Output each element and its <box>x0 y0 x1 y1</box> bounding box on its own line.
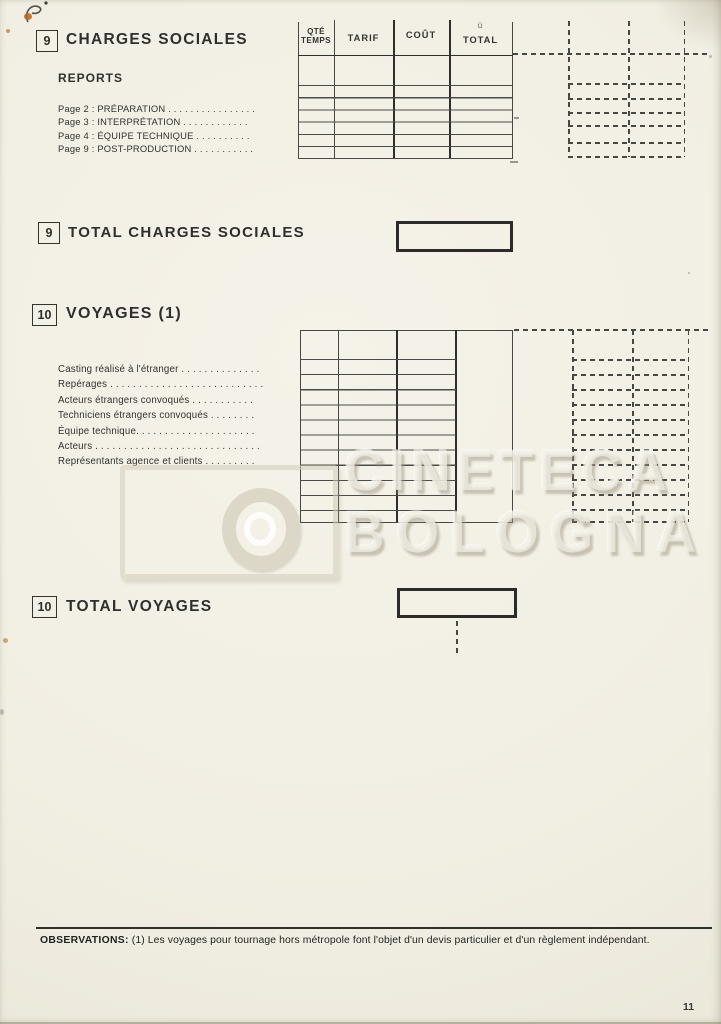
dashed-grid-line <box>572 464 689 466</box>
col-header-tarif: TARIF <box>334 33 393 43</box>
page-number: 11 <box>683 1001 694 1013</box>
col-header-qte-temps: QTÉ TEMPS <box>299 27 333 45</box>
ink-speck <box>24 13 32 20</box>
voyages-line-reperages: Repérages . . . . . . . . . . . . . . . … <box>58 377 263 392</box>
scanned-budget-form-page: 9 CHARGES SOCIALES REPORTS Page 2 : PRÉP… <box>0 0 721 1024</box>
dashed-grid-line <box>572 521 689 523</box>
total-10-number: 10 <box>38 600 52 614</box>
reports-line-list: Page 2 : PRÉPARATION . . . . . . . . . .… <box>58 102 255 155</box>
col-header-total-smudge: ù <box>449 21 512 30</box>
report-line-page9: Page 9 : POST-PRODUCTION . . . . . . . .… <box>58 142 255 155</box>
ink-speck <box>3 638 8 643</box>
dashed-grid-line <box>568 156 685 158</box>
dashed-grid-line <box>684 21 686 157</box>
observations-note: OBSERVATIONS: (1) Les voyages pour tourn… <box>40 935 712 946</box>
footer-rule <box>36 927 712 929</box>
dashed-grid-line <box>568 83 685 85</box>
col-header-total: TOTAL <box>449 35 512 45</box>
dashed-grid-line <box>568 125 685 127</box>
dashed-grid-line <box>572 404 689 406</box>
section-9-title: CHARGES SOCIALES <box>66 31 248 49</box>
report-line-page4: Page 4 : ÉQUIPE TECHNIQUE . . . . . . . … <box>58 129 255 142</box>
ink-speck <box>688 272 690 274</box>
grid-line <box>512 330 513 523</box>
report-line-page3: Page 3 : INTERPRÉTATION . . . . . . . . … <box>58 115 255 128</box>
grid-line <box>300 330 512 331</box>
ink-speck <box>6 29 10 33</box>
dashed-grid-line <box>572 359 689 361</box>
dashed-grid-line <box>568 142 685 144</box>
voyages-line-equipe-technique: Équipe technique. . . . . . . . . . . . … <box>58 424 263 439</box>
dashed-grid-line <box>572 509 689 511</box>
voyages-line-casting: Casting réalisé à l'étranger . . . . . .… <box>58 362 263 377</box>
dashed-grid-line <box>568 112 685 114</box>
section-9-number: 9 <box>44 34 51 48</box>
section-10-title: VOYAGES (1) <box>66 305 182 323</box>
watermark-logo-inner-ring <box>244 512 276 546</box>
reports-label: REPORTS <box>58 71 123 85</box>
dashed-grid-line <box>572 479 689 481</box>
total-charges-sociales-box <box>396 221 513 252</box>
section-10-number: 10 <box>38 308 52 322</box>
ink-speck <box>0 709 4 715</box>
grid-line <box>298 55 513 57</box>
voyages-line-acteurs-etrangers: Acteurs étrangers convoqués . . . . . . … <box>58 393 263 408</box>
charges-sociales-table: QTÉ TEMPS TARIF COÛT TOTAL ù <box>298 20 513 158</box>
dashed-grid-line <box>572 434 689 436</box>
dashed-grid-line <box>572 374 689 376</box>
observations-label: OBSERVATIONS: <box>40 935 129 946</box>
observations-text: (1) Les voyages pour tournage hors métro… <box>132 935 650 946</box>
total-9-number: 9 <box>46 226 53 240</box>
voyages-dashed-table <box>572 330 689 523</box>
stray-dash-mark <box>514 117 519 119</box>
voyages-line-techniciens: Techniciens étrangers convoqués . . . . … <box>58 408 263 423</box>
dashed-grid-line <box>572 494 689 496</box>
voyages-line-representants: Représentants agence et clients . . . . … <box>58 454 263 469</box>
total-charges-sociales-label: TOTAL CHARGES SOCIALES <box>68 224 305 241</box>
dashed-grid-line <box>572 419 689 421</box>
dashed-grid-line <box>572 449 689 451</box>
total-voyages-box <box>397 588 517 618</box>
voyages-table <box>300 330 513 523</box>
dashed-grid-line <box>628 21 630 157</box>
watermark-logo-outer-ring <box>222 488 300 570</box>
report-line-page2: Page 2 : PRÉPARATION . . . . . . . . . .… <box>58 102 255 115</box>
total-10-number-box: 10 <box>32 596 57 618</box>
section-10-number-box: 10 <box>32 304 57 326</box>
pen-squiggle-mark <box>20 0 54 24</box>
dashed-grid-line <box>568 98 685 100</box>
grid-row-lines <box>298 85 513 159</box>
total-9-number-box: 9 <box>38 222 60 244</box>
total-voyages-label: TOTAL VOYAGES <box>66 598 212 616</box>
col-header-cout: COÛT <box>393 30 449 40</box>
grid-line <box>300 522 513 523</box>
voyages-line-list: Casting réalisé à l'étranger . . . . . .… <box>58 362 263 470</box>
dashed-tail-line <box>456 621 458 655</box>
stray-dash-mark <box>510 161 518 163</box>
dashed-grid-line <box>568 21 570 157</box>
section-9-number-box: 9 <box>36 30 58 52</box>
ink-speck <box>709 55 712 58</box>
voyages-line-acteurs: Acteurs . . . . . . . . . . . . . . . . … <box>58 439 263 454</box>
dashed-grid-line <box>572 389 689 391</box>
grid-row-lines <box>300 359 456 511</box>
charges-sociales-dashed-table <box>568 21 685 158</box>
